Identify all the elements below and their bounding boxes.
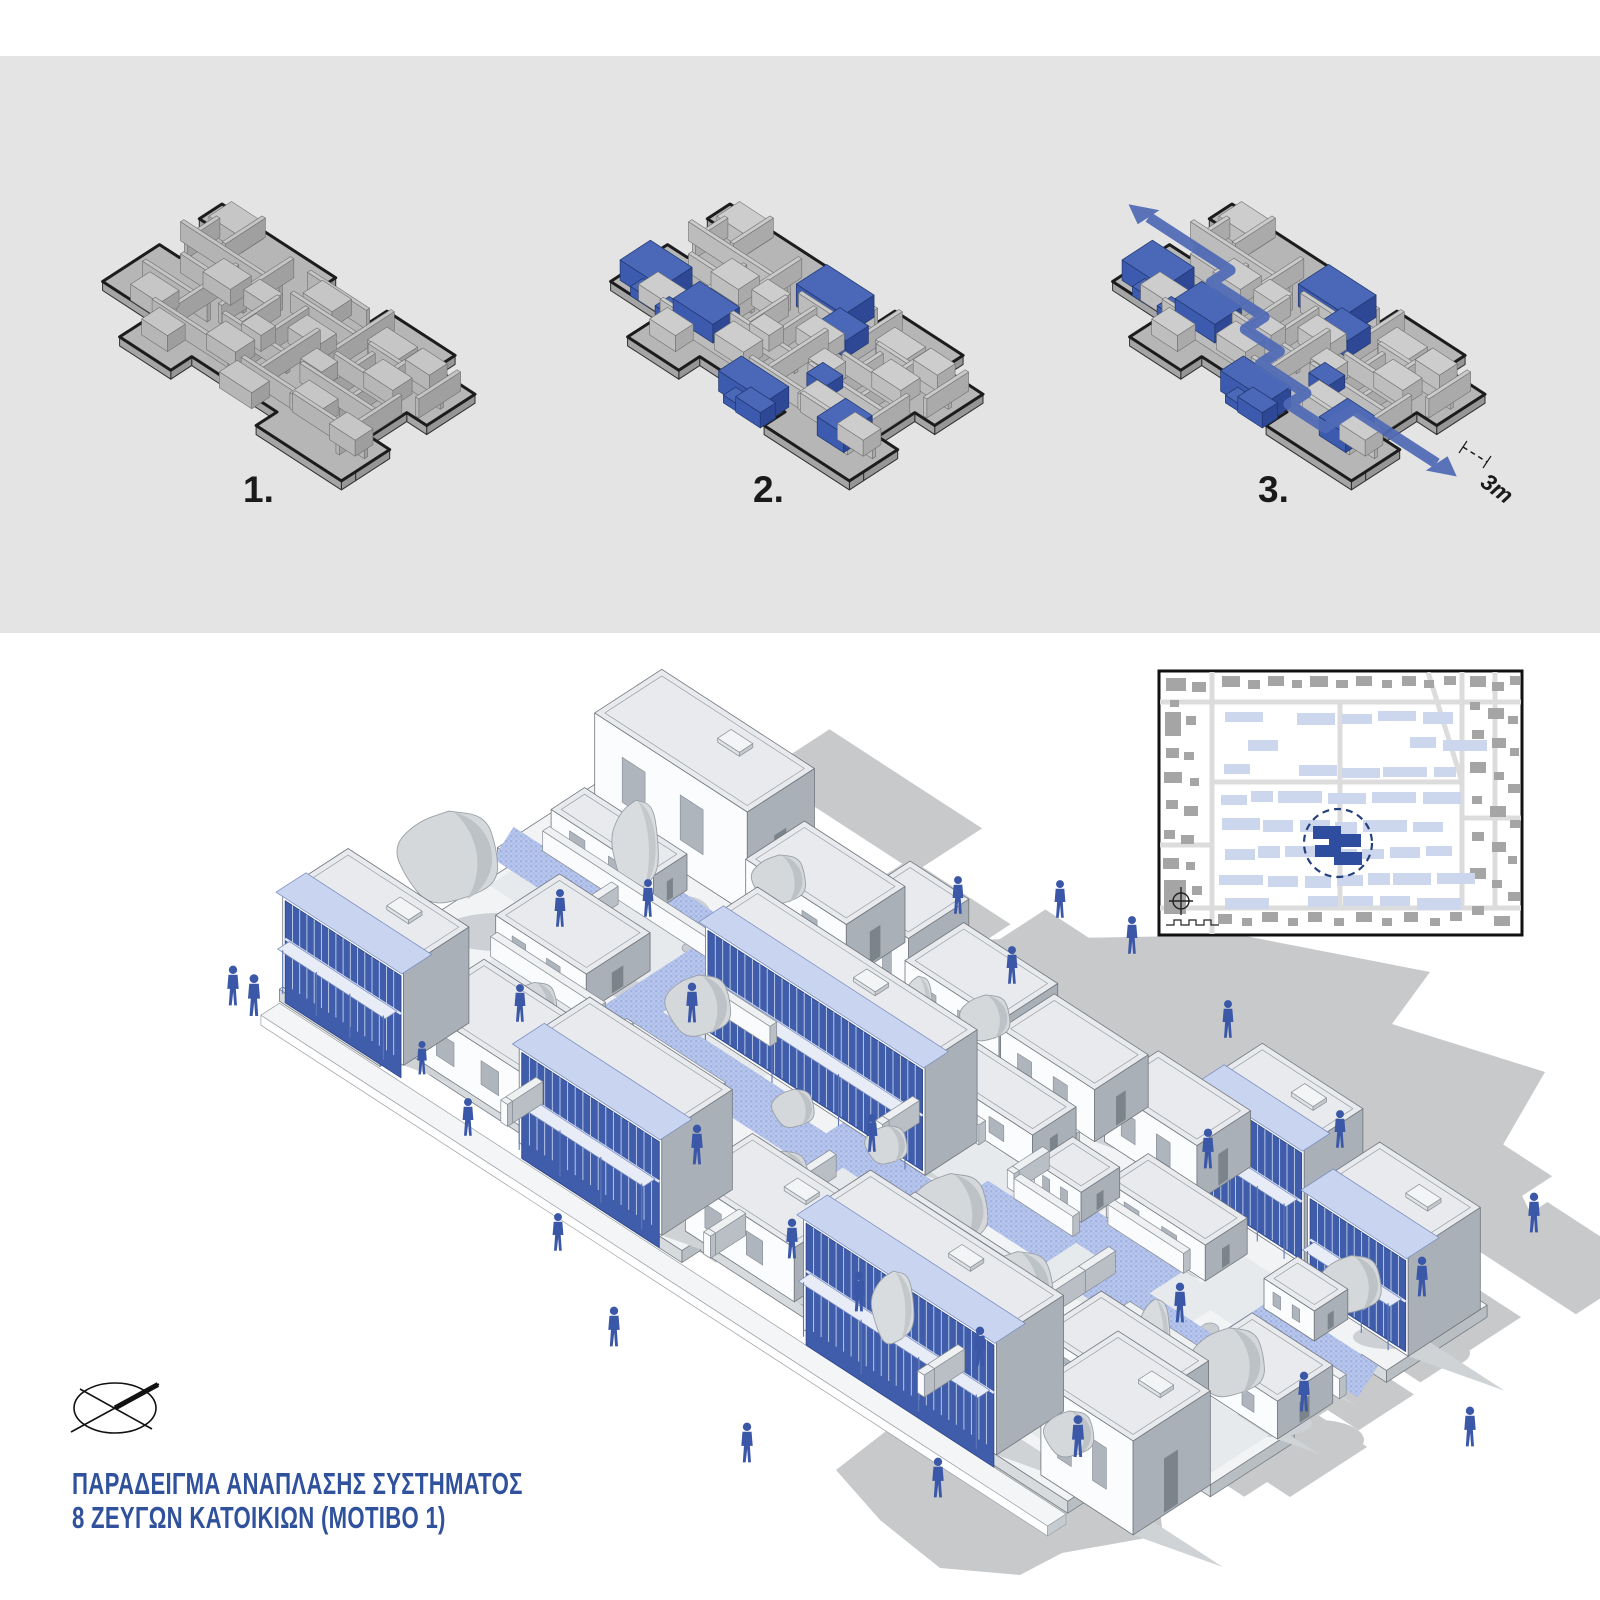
svg-text:2.: 2. xyxy=(753,469,784,510)
svg-text:3.: 3. xyxy=(1258,469,1289,510)
svg-text:ΠΑΡΑΔΕΙΓΜΑ ΑΝΑΠΛΑΣΗΣ ΣΥΣΤΗΜΑΤΟ: ΠΑΡΑΔΕΙΓΜΑ ΑΝΑΠΛΑΣΗΣ ΣΥΣΤΗΜΑΤΟΣ xyxy=(72,1466,523,1501)
svg-text:1.: 1. xyxy=(243,469,274,510)
svg-text:8 ΖΕΥΓΩΝ ΚΑΤΟΙΚΙΩΝ (ΜΟΤΙΒΟ 1): 8 ΖΕΥΓΩΝ ΚΑΤΟΙΚΙΩΝ (ΜΟΤΙΒΟ 1) xyxy=(72,1500,446,1535)
